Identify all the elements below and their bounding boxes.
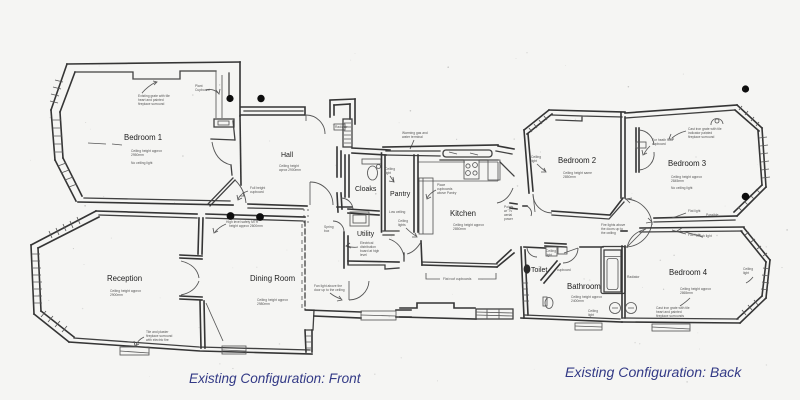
svg-text:Hall: Hall (281, 152, 294, 159)
svg-text:Bedroom 3: Bedroom 3 (668, 159, 706, 168)
svg-text:light: light (588, 313, 594, 317)
svg-text:box: box (324, 229, 330, 233)
svg-text:the ceiling: the ceiling (601, 231, 616, 235)
svg-text:Existing Configuration: Front: Existing Configuration: Front (189, 371, 362, 386)
svg-text:light: light (531, 159, 537, 163)
svg-text:light: light (385, 171, 391, 175)
svg-text:height approx 2600mm: height approx 2600mm (229, 224, 263, 228)
svg-text:2845mm: 2845mm (671, 179, 684, 183)
svg-text:2400mm: 2400mm (571, 299, 584, 303)
svg-text:2900mm: 2900mm (110, 293, 123, 297)
svg-text:2980mm: 2980mm (257, 302, 270, 306)
svg-text:lights: lights (398, 223, 406, 227)
svg-text:Flat light: Flat light (688, 209, 701, 213)
svg-text:power: power (504, 217, 514, 221)
svg-text:No ceiling light: No ceiling light (671, 186, 693, 190)
svg-text:2865mm: 2865mm (680, 291, 693, 295)
svg-text:Existing Configuration: Back: Existing Configuration: Back (565, 364, 742, 380)
svg-text:Pantry: Pantry (390, 191, 411, 198)
svg-text:Bedroom 4: Bedroom 4 (669, 268, 708, 277)
svg-text:Toilet: Toilet (531, 267, 547, 274)
svg-text:level: level (360, 253, 367, 257)
svg-text:aprox 2900mm: aprox 2900mm (279, 168, 301, 172)
svg-text:Radiator: Radiator (627, 275, 640, 279)
svg-text:cupboard: cupboard (557, 268, 571, 272)
svg-text:Low ceiling: Low ceiling (389, 210, 405, 214)
svg-text:Bathroom: Bathroom (567, 282, 601, 291)
svg-text:cupboard: cupboard (652, 142, 666, 146)
svg-text:above Pantry: above Pantry (437, 191, 457, 195)
svg-text:2950mm: 2950mm (131, 153, 144, 157)
svg-text:Cloaks: Cloaks (355, 186, 377, 193)
svg-text:light: light (743, 271, 749, 275)
svg-text:2850mm: 2850mm (563, 175, 576, 179)
svg-text:fireplace surround: fireplace surround (688, 135, 715, 139)
svg-text:Utility: Utility (357, 231, 375, 238)
svg-text:Bedroom 1: Bedroom 1 (124, 133, 162, 142)
svg-text:Kitchen: Kitchen (450, 209, 476, 218)
svg-text:2850mm: 2850mm (453, 227, 466, 231)
svg-text:cupboard: cupboard (250, 190, 264, 194)
svg-text:door up to the ceiling: door up to the ceiling (314, 288, 345, 292)
svg-text:fireplace surrounds: fireplace surrounds (656, 314, 684, 318)
svg-text:Reception: Reception (107, 274, 142, 283)
svg-text:Flat roof cupboards: Flat roof cupboards (443, 277, 472, 281)
svg-text:Bedroom 2: Bedroom 2 (558, 156, 596, 165)
svg-text:Dining Room: Dining Room (250, 274, 295, 283)
svg-text:Possible: Possible (706, 213, 719, 217)
svg-text:light: light (546, 253, 552, 257)
svg-text:fireplace surround: fireplace surround (138, 102, 165, 106)
svg-text:with electric fire: with electric fire (146, 338, 169, 342)
svg-text:No ceiling light: No ceiling light (131, 161, 153, 165)
svg-text:water terminal: water terminal (402, 135, 423, 139)
